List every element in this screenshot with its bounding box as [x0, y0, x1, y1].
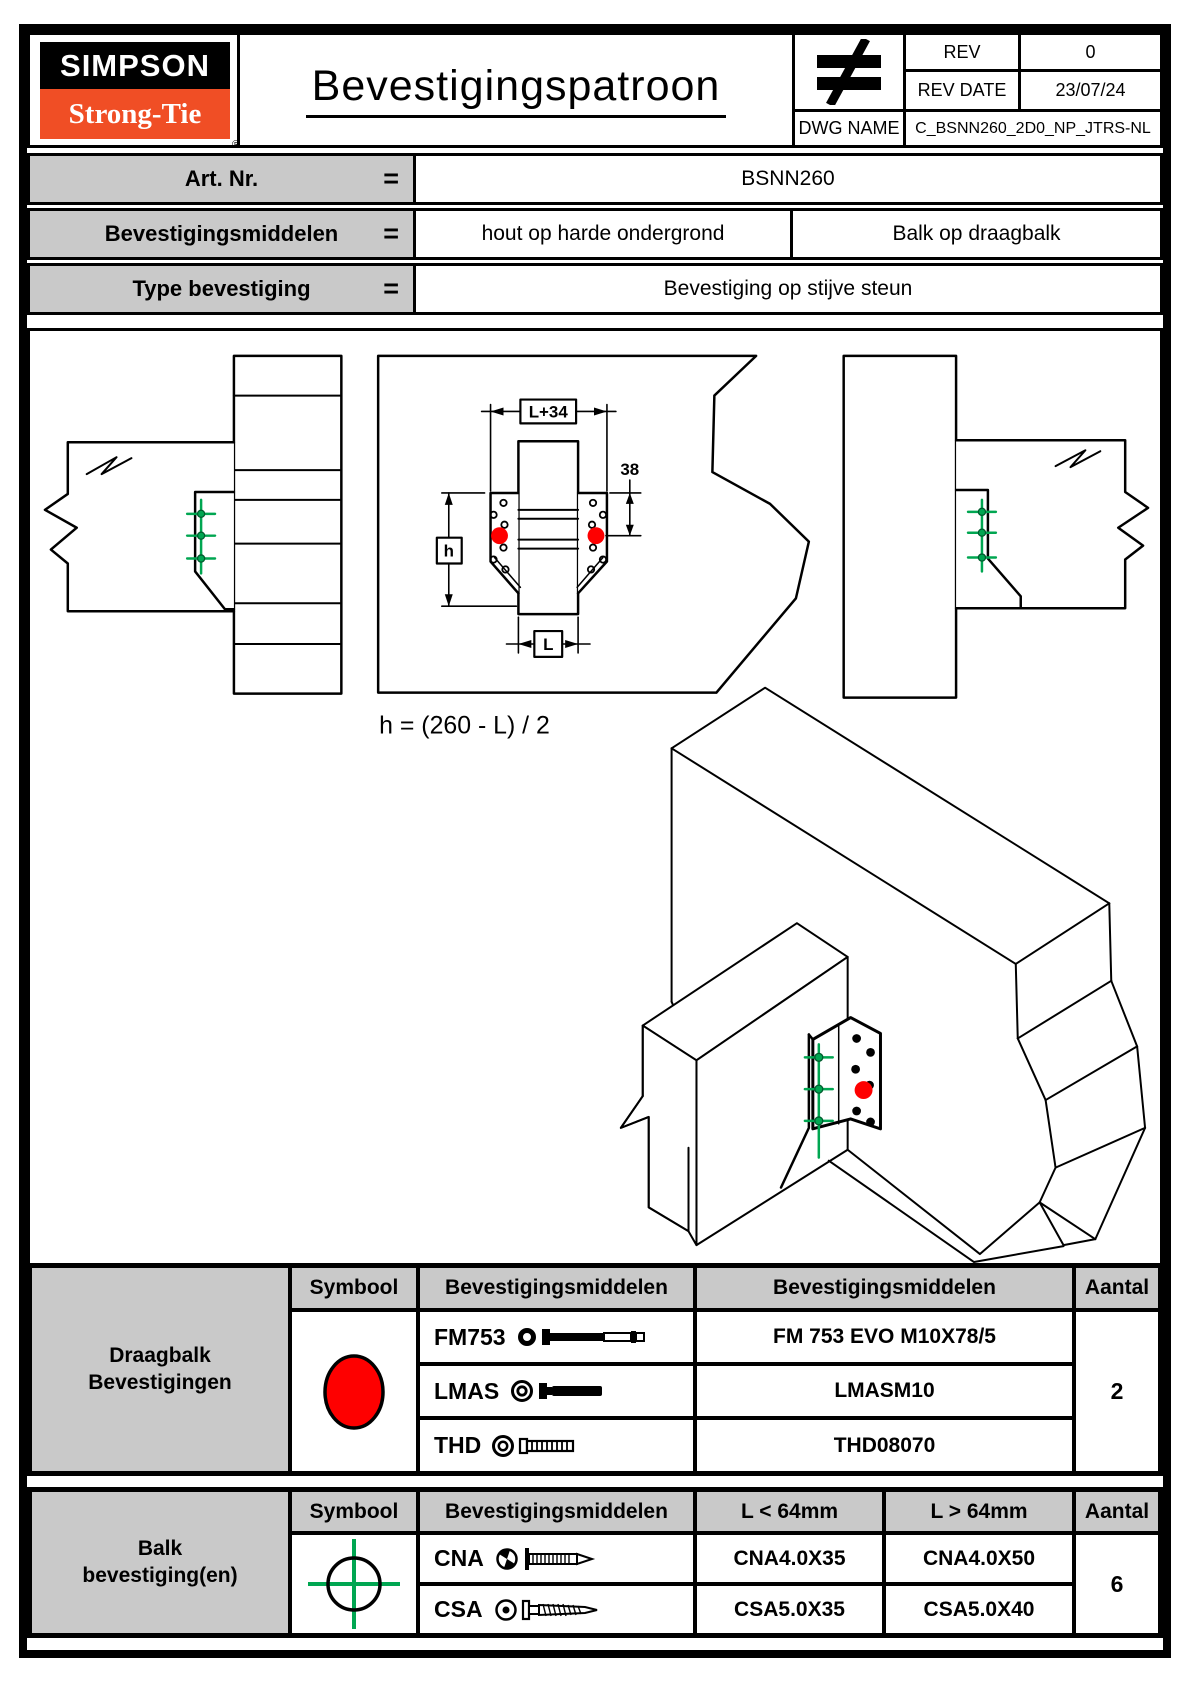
fastener-table-draagbalk: Draagbalk Bevestigingen Symbool Bevestig…	[27, 1263, 1163, 1476]
dim-right-label: 38	[620, 460, 639, 479]
fastener-row: THD	[418, 1418, 695, 1473]
group-label-cell: Draagbalk Bevestigingen	[30, 1266, 290, 1473]
simpson-logo: SIMPSON	[40, 42, 230, 89]
rev-date-value: 23/07/24	[1055, 80, 1125, 101]
strongtie-logo: Strong-Tie	[40, 89, 230, 139]
fastener-row: CNA	[418, 1533, 695, 1584]
header-symbool: Symbool	[290, 1266, 418, 1310]
type-value-cell: Bevestiging op stijve steun	[413, 263, 1163, 315]
rev-date-label-cell: REV DATE	[903, 69, 1021, 112]
equals-sign: =	[383, 164, 399, 195]
group-label-cell: Balk bevestiging(en)	[30, 1490, 290, 1635]
fm753-bolt-icon	[516, 1322, 666, 1352]
product-long: CNA4.0X50	[884, 1533, 1074, 1584]
header-symbool: Symbool	[290, 1490, 418, 1533]
aantal-value: 6	[1074, 1533, 1160, 1635]
cna-nail-icon	[494, 1542, 624, 1576]
not-equal-cell	[792, 32, 906, 112]
height-formula: h = (260 - L) / 2	[379, 712, 550, 739]
rev-label-cell: REV	[903, 32, 1021, 72]
art-nr-value-cell: BSNN260	[413, 153, 1163, 205]
group-label: Balk bevestiging(en)	[62, 1536, 258, 1589]
art-nr-label: Art. Nr.	[185, 166, 258, 192]
art-nr-value: BSNN260	[741, 167, 834, 191]
symbol-cell	[290, 1533, 418, 1635]
middelen-label: Bevestigingsmiddelen	[105, 221, 339, 247]
header-aantal: Aantal	[1074, 1266, 1160, 1310]
header-short: L < 64mm	[695, 1490, 884, 1533]
dwg-name-label: DWG NAME	[799, 118, 900, 139]
header-long: L > 64mm	[884, 1490, 1074, 1533]
type-label-cell: Type bevestiging =	[27, 263, 416, 315]
type-label: Type bevestiging	[132, 276, 310, 302]
title-cell: Bevestigingspatroon	[237, 32, 795, 148]
product-name: LMASM10	[695, 1364, 1074, 1418]
symbol-cell	[290, 1310, 418, 1473]
fastener-row: FM753	[418, 1310, 695, 1364]
dim-top-label: L+34	[529, 402, 569, 421]
draagbalk-fixing-marker	[491, 527, 508, 544]
fastener-row: CSA	[418, 1584, 695, 1635]
draagbalk-fixing-marker	[588, 527, 605, 544]
dim-bottom-label: L	[543, 635, 553, 654]
product-long: CSA5.0X40	[884, 1584, 1074, 1635]
logo-line2: Strong-Tie	[69, 98, 202, 131]
product-name: FM 753 EVO M10X78/5	[695, 1310, 1074, 1364]
dwg-name-value-cell: C_BSNN260_2D0_NP_JTRS-NL	[903, 109, 1163, 148]
technical-drawing: L+34 38 h L h = (260 - L) / 2	[30, 331, 1160, 1263]
fastener-code: FM753	[434, 1324, 506, 1351]
middelen-label-cell: Bevestigingsmiddelen =	[27, 208, 416, 260]
logo-cell: SIMPSON Strong-Tie ®	[27, 32, 240, 148]
fastener-code: CNA	[434, 1545, 484, 1572]
fastener-table-balk: Balk bevestiging(en) Symbool Bevestiging…	[27, 1487, 1163, 1638]
csa-screw-icon	[493, 1593, 623, 1627]
aantal-value: 2	[1074, 1310, 1160, 1473]
logo-line1: SIMPSON	[60, 48, 210, 84]
rev-value: 0	[1085, 42, 1095, 63]
type-value: Bevestiging op stijve steun	[664, 277, 913, 301]
header-aantal: Aantal	[1074, 1490, 1160, 1533]
equals-sign: =	[383, 219, 399, 250]
dim-left-label: h	[444, 542, 454, 561]
dwg-name-value: C_BSNN260_2D0_NP_JTRS-NL	[915, 120, 1151, 138]
fastener-row: LMAS	[418, 1364, 695, 1418]
draagbalk-break-steps	[1016, 903, 1145, 1245]
rev-date-label: REV DATE	[918, 80, 1007, 101]
not-equal-icon	[813, 39, 885, 105]
red-circle-symbol-icon	[319, 1349, 389, 1435]
front-view	[378, 356, 809, 693]
product-short: CSA5.0X35	[695, 1584, 884, 1635]
header-product: Bevestigingsmiddelen	[695, 1266, 1074, 1310]
product-name: THD08070	[695, 1418, 1074, 1473]
fastener-code: CSA	[434, 1596, 483, 1623]
rev-date-value-cell: 23/07/24	[1018, 69, 1163, 112]
rev-value-cell: 0	[1018, 32, 1163, 72]
drawing-area: L+34 38 h L h = (260 - L) / 2	[27, 328, 1163, 1266]
isometric-view	[621, 688, 1145, 1262]
right-side-view	[844, 356, 1148, 698]
thd-screw-anchor-icon	[491, 1431, 611, 1461]
middelen-value-left-cell: hout op harde ondergrond	[413, 208, 793, 260]
drawing-sheet: SIMPSON Strong-Tie ® Bevestigingspatroon…	[0, 0, 1190, 1682]
header-middel: Bevestigingsmiddelen	[418, 1490, 695, 1533]
product-short: CNA4.0X35	[695, 1533, 884, 1584]
middelen-value-right: Balk op draagbalk	[892, 222, 1060, 246]
dwg-name-label-cell: DWG NAME	[792, 109, 906, 148]
green-crosshair-symbol-icon	[302, 1535, 406, 1633]
middelen-value-left: hout op harde ondergrond	[482, 222, 725, 246]
draagbalk-fixing-marker	[855, 1081, 873, 1099]
page-title: Bevestigingspatroon	[306, 62, 727, 118]
fastener-code: THD	[434, 1432, 481, 1459]
art-nr-label-cell: Art. Nr. =	[27, 153, 416, 205]
middelen-value-right-cell: Balk op draagbalk	[790, 208, 1163, 260]
rev-label: REV	[943, 42, 980, 63]
lmas-anchor-icon	[509, 1374, 629, 1408]
left-side-view	[45, 356, 341, 694]
equals-sign: =	[383, 274, 399, 305]
group-label: Draagbalk Bevestigingen	[62, 1343, 258, 1396]
fastener-code: LMAS	[434, 1378, 499, 1405]
header-middel: Bevestigingsmiddelen	[418, 1266, 695, 1310]
